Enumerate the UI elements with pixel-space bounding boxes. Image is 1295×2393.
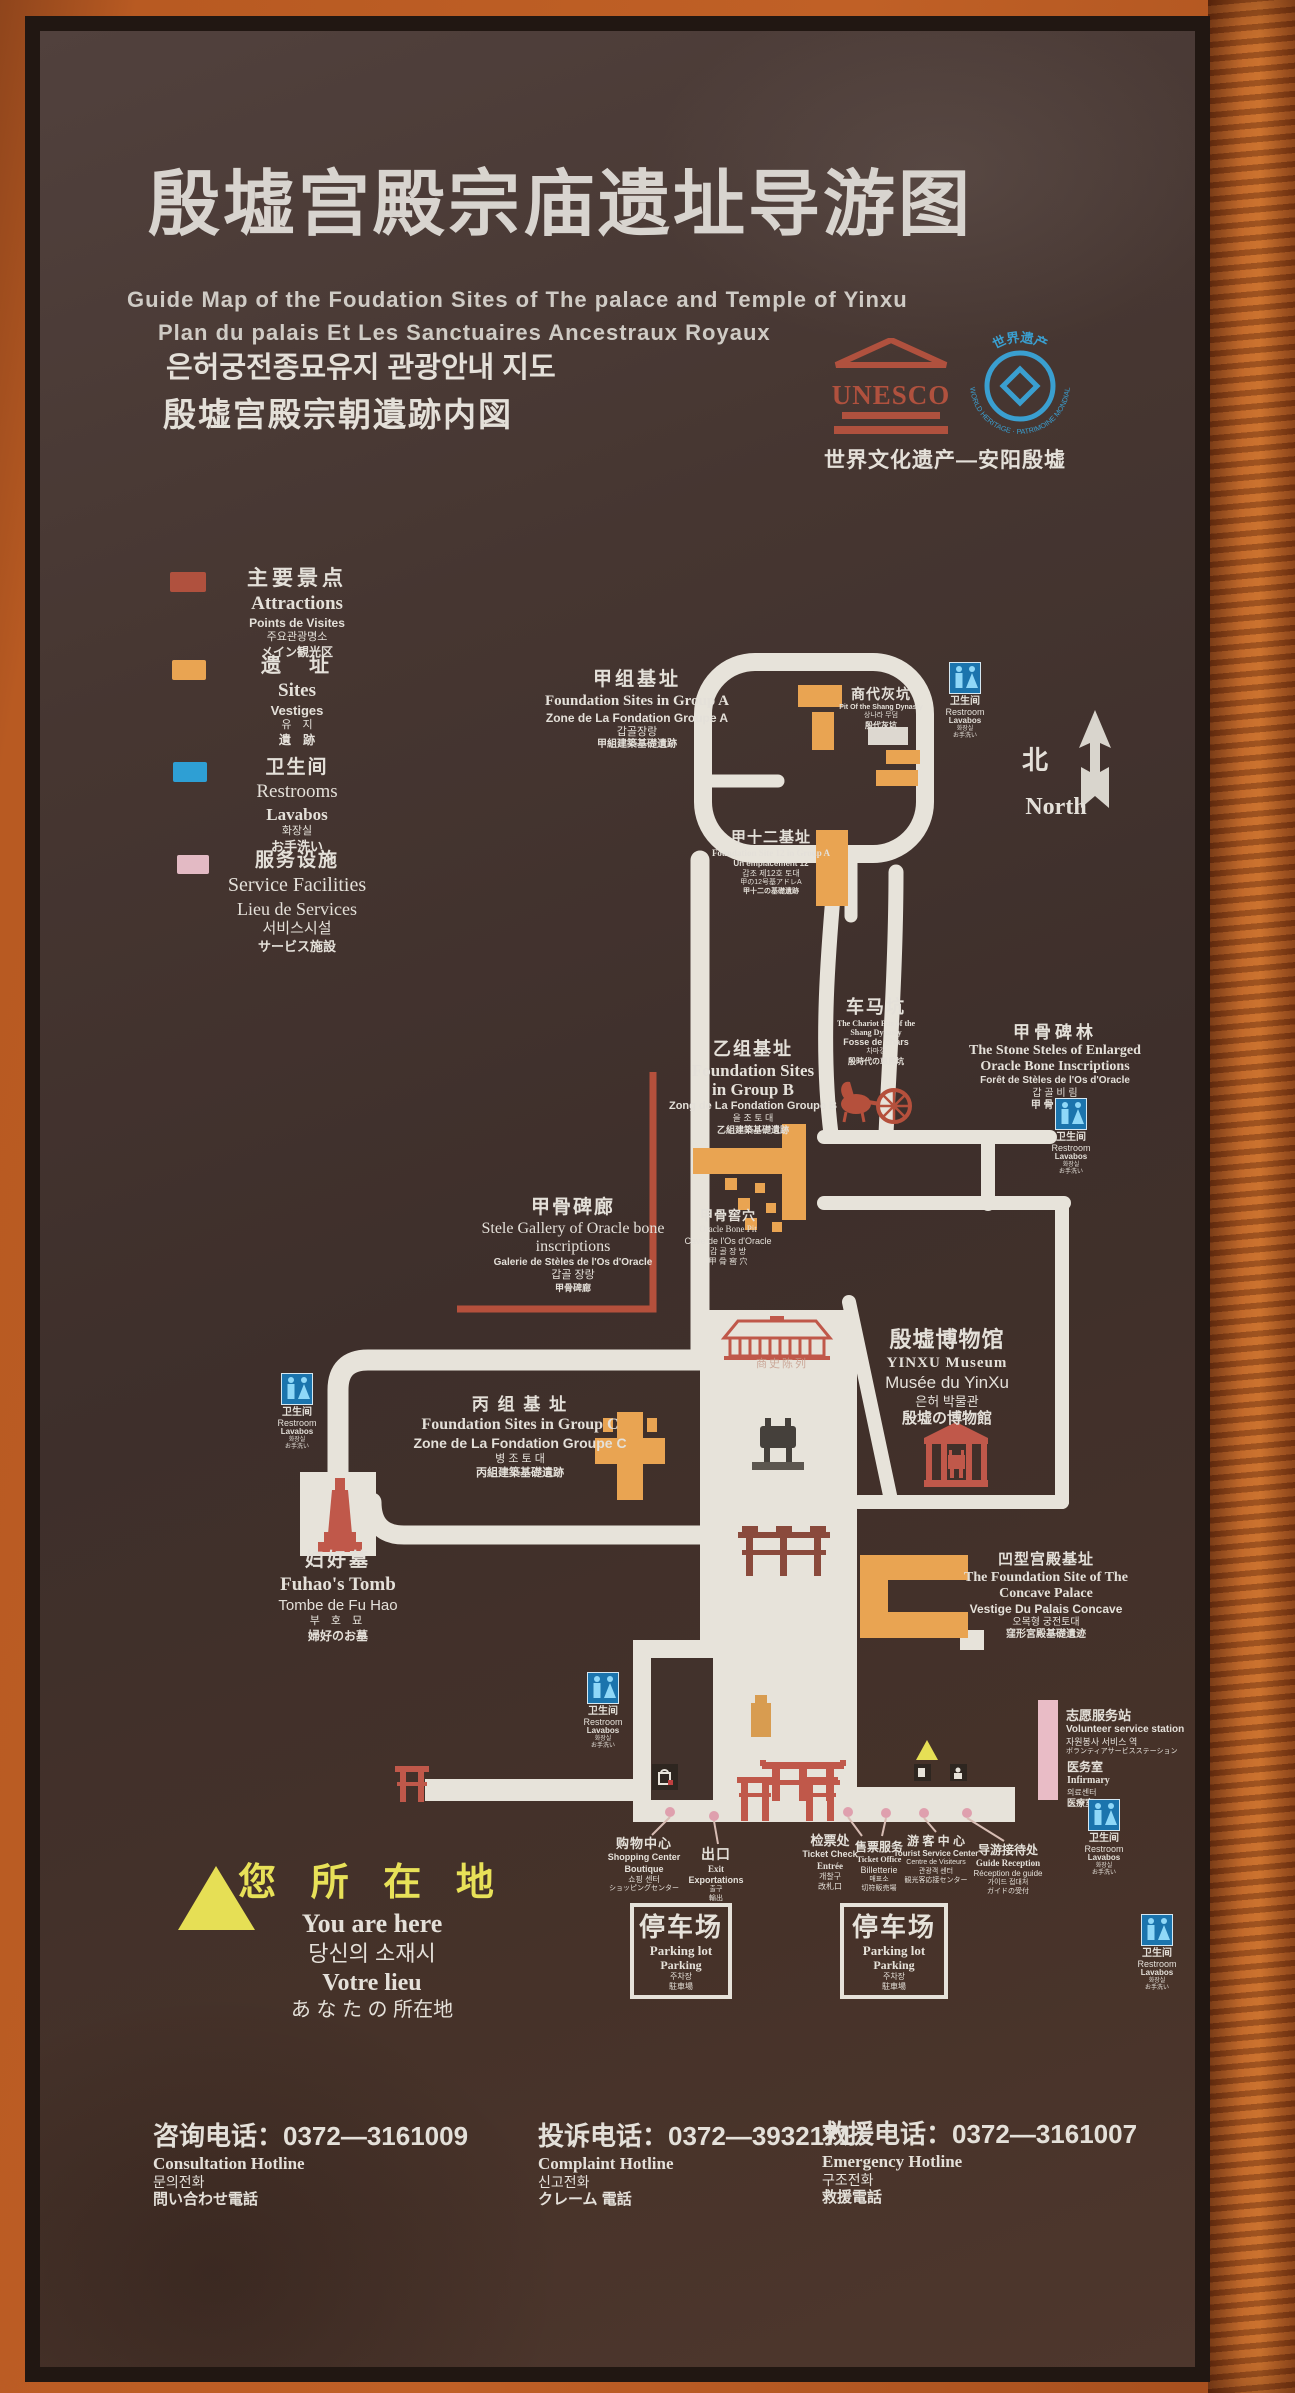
service-kiosk-icon <box>950 1764 967 1781</box>
chariot-icon <box>841 1082 910 1122</box>
title-english: Guide Map of the Foudation Sites of The … <box>127 286 908 314</box>
map-label-concave-palace: 凹型宫殿基址 The Foundation Site of The Concav… <box>961 1551 1131 1642</box>
restroom-southeast: 卫生间Restroom Lavabos화장실 お手洗い <box>1064 1799 1144 1877</box>
volunteer-station-bar <box>1038 1700 1058 1800</box>
hotline-consultation: 咨询电话：0372—3161009 Consultation Hotline 문… <box>153 2120 468 2210</box>
restroom-icon <box>1088 1799 1120 1831</box>
restroom-icon <box>1141 1914 1173 1946</box>
map-label-group-a: 甲组基址 Foundation Sites in Group A Zone de… <box>545 668 729 752</box>
legend-restrooms: 卫生间 Restrooms Lavabos 화장실 お手洗い <box>256 756 337 855</box>
restroom-icon <box>949 662 981 694</box>
legend-service: 服务设施 Service Facilities Lieu de Services… <box>228 849 366 955</box>
heritage-caption: 世界文化遗产—安阳殷墟 <box>824 448 1066 474</box>
west-gate-icon <box>395 1766 429 1802</box>
hotline-complaint: 投诉电话：0372—3932171 Complaint Hotline 신고전화… <box>538 2120 853 2210</box>
map-label-oracle-pit: 甲骨窖穴 Oracle Bone Pit Cave de l'Os d'Orac… <box>685 1208 772 1267</box>
map-label-shang-pit: 商代灰坑 Pit Of the Shang Dynasty 상나라 무덤 殷代灰… <box>839 686 923 731</box>
label-ticket-check: 检票处 Ticket Check Entrée 개찰구 改札口 <box>802 1833 857 1892</box>
legend-swatch-sites <box>172 660 206 680</box>
map-label-group-b: 乙组基址 Foundation Sites in Group B Zong de… <box>669 1038 837 1136</box>
label-volunteer-station: 志愿服务站 Volunteer service station 자원봉사 서비스… <box>1066 1708 1184 1757</box>
restroom-west-gate: 卫生间Restroom Lavabos화장실 お手洗い <box>563 1672 643 1750</box>
museum-icon <box>924 1422 988 1487</box>
shopping-center-icon <box>652 1764 678 1790</box>
parking-box-west: 停车场 Parking lot Parking 주차장 駐車場 <box>630 1903 732 1999</box>
restroom-top: 卫生间Restroom Lavabos화장실 お手洗い <box>925 662 1005 740</box>
label-shopping-center: 购物中心 Shopping Center Boutique 쇼핑 센터 ショッピ… <box>608 1836 681 1894</box>
paifang-gate-icon <box>738 1526 830 1576</box>
map-label-site-12: 甲十二基址 Foundation Site 12 in Group A Un e… <box>712 829 830 897</box>
map-label-exhibition-hall: 商史陈列 <box>756 1358 808 1372</box>
title-korean: 은허궁전종묘유지 관광안내 지도 <box>166 350 556 386</box>
map-label-chariot-pit: 车马坑 The Chariot Pits of the Shang Dynast… <box>826 996 926 1067</box>
svg-text:世界遗产: 世界遗产 <box>990 330 1050 352</box>
restroom-icon <box>1055 1098 1087 1130</box>
legend-sites: 遗 址 Sites Vestiges 유 지 遺 跡 <box>261 654 333 748</box>
world-heritage-logo: 世界遗产 WORLD HERITAGE · PATRIMOINE MONDIAL <box>962 324 1078 446</box>
label-guide-reception: 导游接待处 Guide Reception Réception de guide… <box>974 1843 1043 1897</box>
parking-box-east: 停车场 Parking lot Parking 주차장 駐車場 <box>840 1903 948 1999</box>
hotline-emergency: 救援电话：0372—3161007 Emergency Hotline 구조전화… <box>822 2118 1137 2208</box>
svg-text:UNESCO: UNESCO <box>832 380 951 410</box>
label-exit: 出口 Exit Exportations 출구 輸出 <box>688 1846 743 1904</box>
svg-text:WORLD HERITAGE · PATRIMOINE MO: WORLD HERITAGE · PATRIMOINE MONDIAL <box>968 386 1072 436</box>
restroom-icon <box>281 1373 313 1405</box>
legend-swatch-service <box>177 855 209 874</box>
title-japanese: 殷墟宫殿宗朝遺跡内図 <box>163 394 513 435</box>
title-french: Plan du palais Et Les Sanctuaires Ancest… <box>158 319 771 347</box>
photo-of-guide-sign: 殷墟宫殿宗庙遗址导游图 Guide Map of the Foudation S… <box>0 0 1295 2393</box>
restroom-fuhao: 卫生间Restroom Lavabos화장실 お手洗い <box>257 1373 337 1451</box>
you-are-here-block: 您 所 在 地 You are here 당신의 소재시 Votre lieu … <box>238 1860 506 2023</box>
phone-booth-icon <box>914 1764 931 1781</box>
unesco-logo: UNESCO <box>830 338 952 444</box>
legend-attractions: 主要景点 Attractions Points de Visites 주요관광명… <box>247 566 347 660</box>
restroom-icon <box>587 1672 619 1704</box>
map-label-group-c: 丙 组 基 址 Foundation Sites in Group C Zone… <box>413 1394 626 1480</box>
north-en: North <box>1025 792 1086 822</box>
restroom-east: 卫生间Restroom Lavabos화장실 お手洗い <box>1031 1098 1111 1176</box>
north-zh: 北 <box>1022 744 1048 777</box>
page-title: 殷墟宫殿宗庙遗址导游图 <box>148 160 973 250</box>
legend-swatch-attractions <box>170 572 206 592</box>
you-are-here-marker <box>916 1740 938 1760</box>
map-label-stele-gallery: 甲骨碑廊 Stele Gallery of Oracle bone inscri… <box>468 1196 678 1294</box>
label-tourist-center: 游 客 中 心 Tourist Service Center Centre de… <box>894 1834 979 1885</box>
map-label-museum: 殷墟博物馆 YINXU Museum Musée du YinXu 은허 박물관… <box>885 1326 1009 1429</box>
legend-swatch-restrooms <box>173 762 207 782</box>
map-label-fuhao-tomb: 妇好墓 Fuhao's Tomb Tombe de Fu Hao 부 호 묘 婦… <box>278 1549 397 1644</box>
restroom-parking: 卫生间Restroom Lavabos화장실 お手洗い <box>1117 1914 1197 1992</box>
